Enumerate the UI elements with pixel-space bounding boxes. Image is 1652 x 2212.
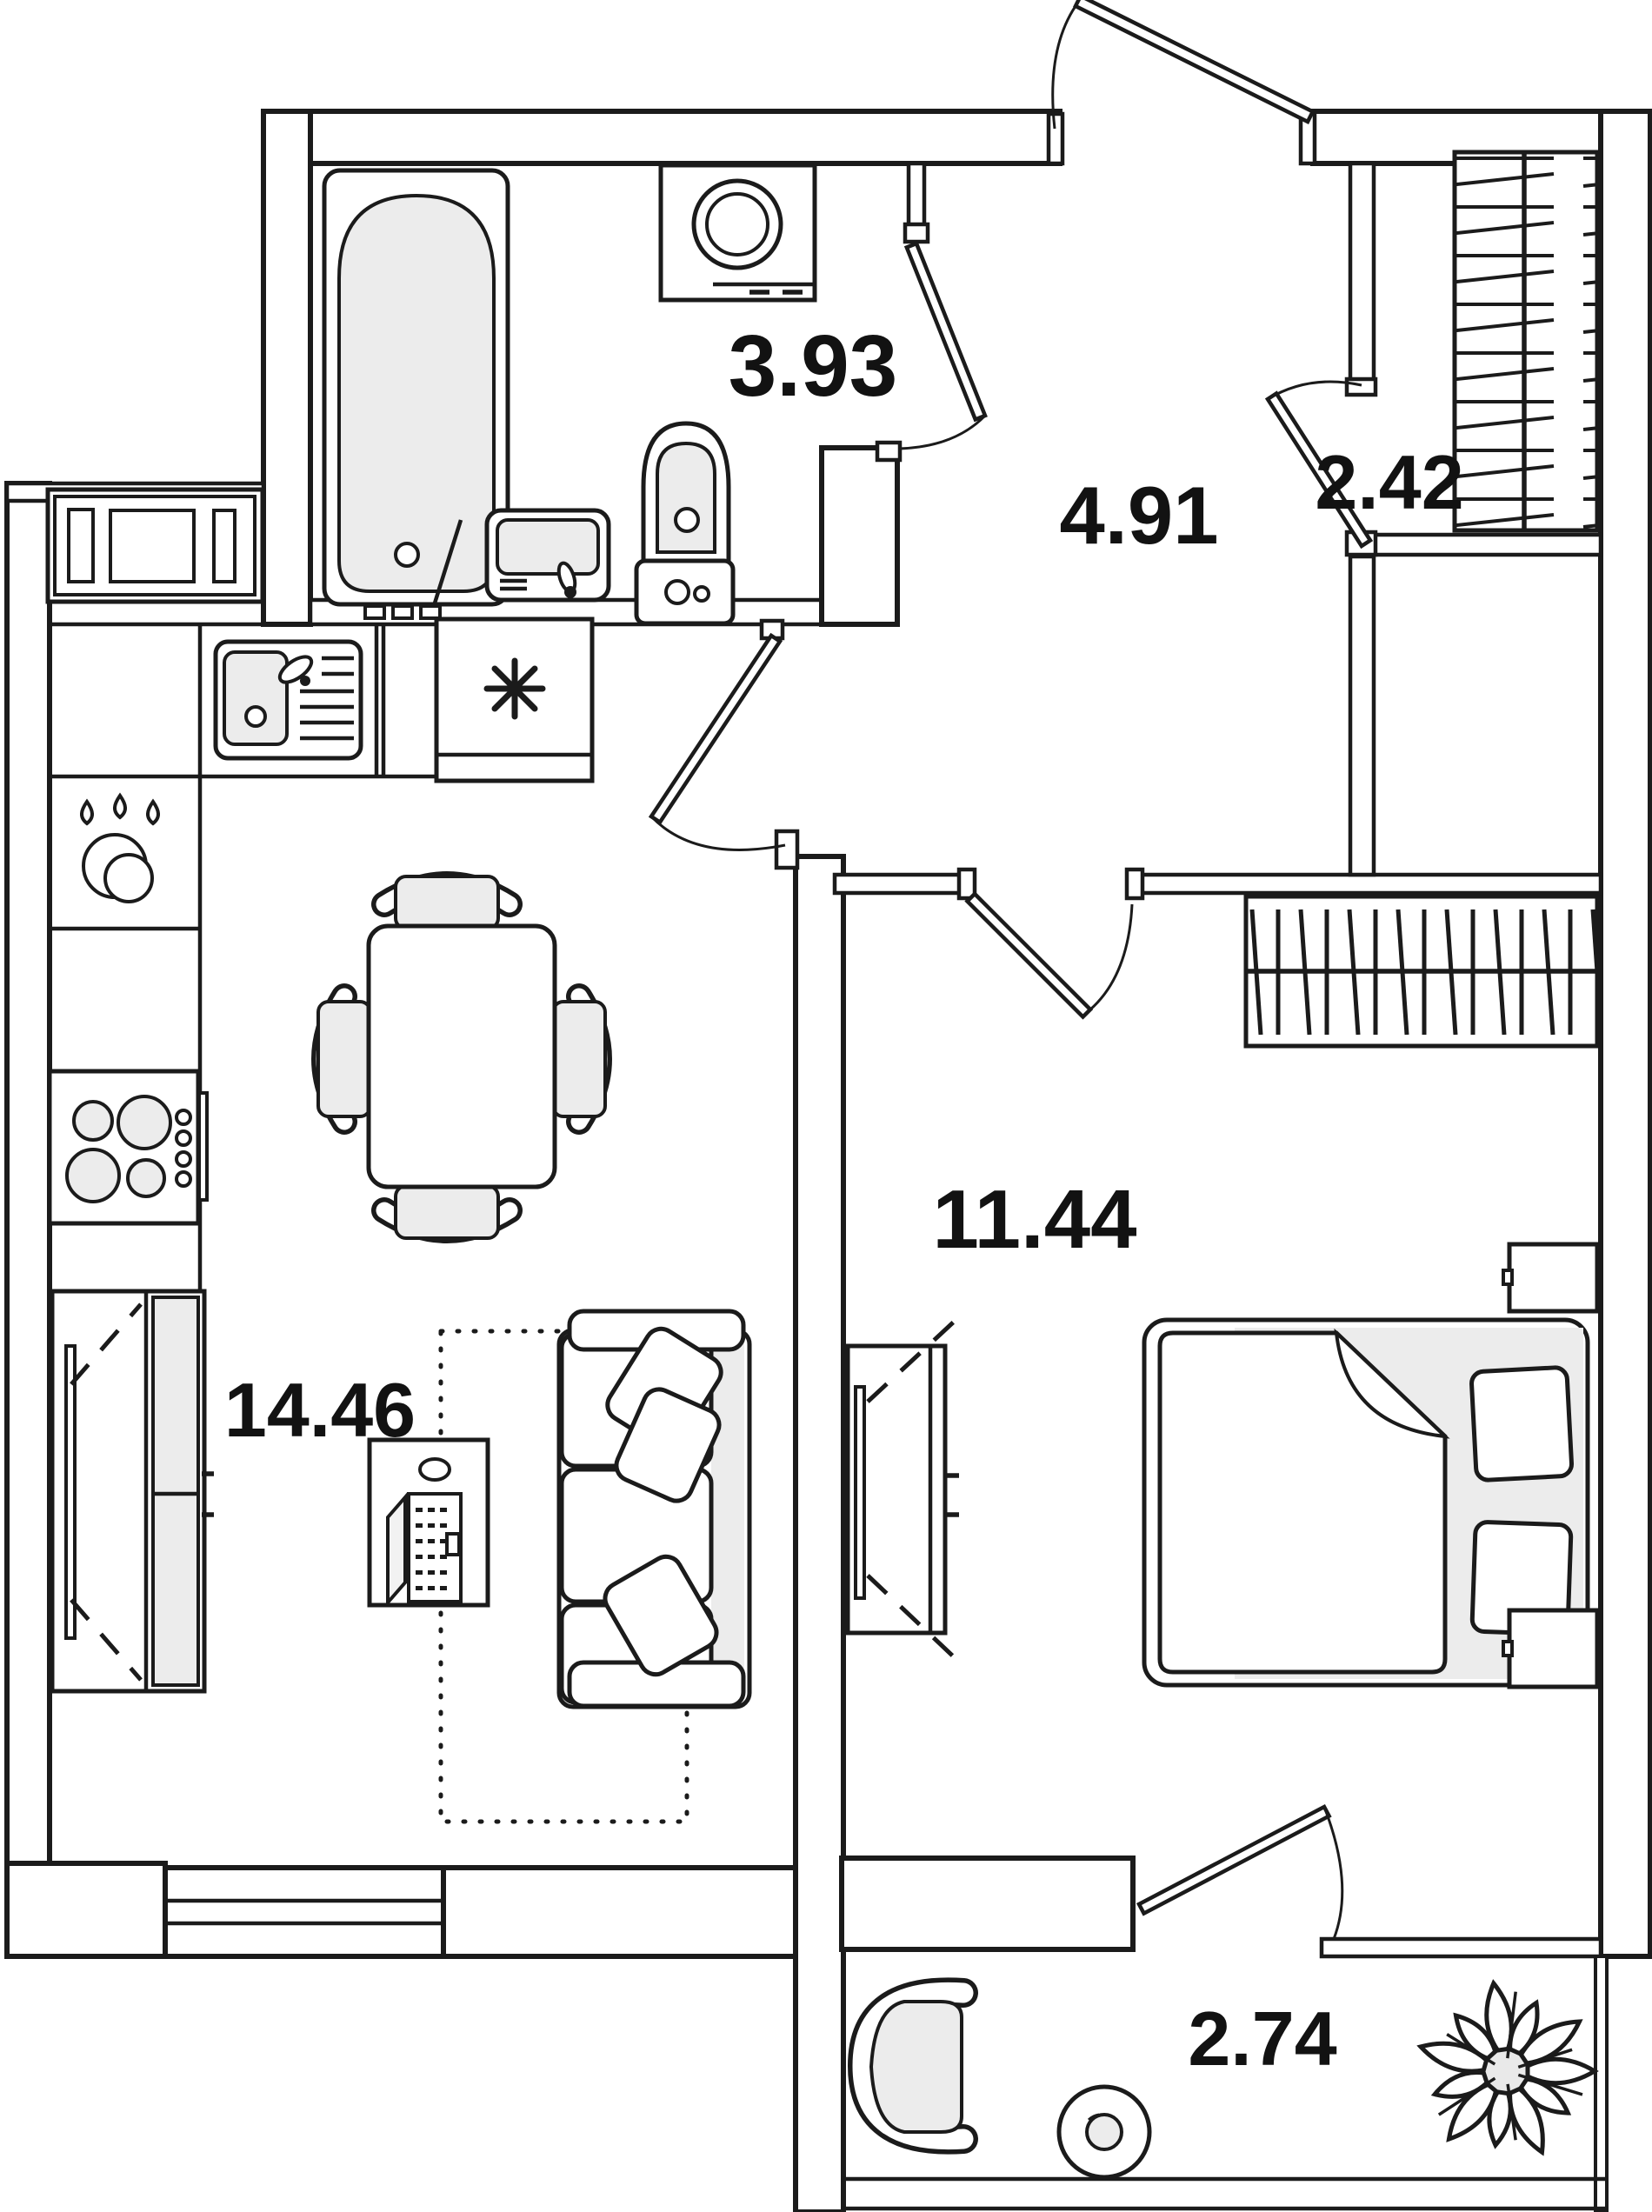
wall-top-left xyxy=(263,111,1060,163)
kitchen-door xyxy=(651,621,797,868)
laptop xyxy=(388,1494,461,1602)
nightstand-top xyxy=(1503,1244,1597,1311)
dining-set xyxy=(318,876,605,1238)
wall-balcony-top-right xyxy=(1322,1939,1601,1956)
desk xyxy=(370,1440,488,1605)
bedroom-door xyxy=(959,869,1142,1017)
bathroom-door-swing-arc xyxy=(899,416,985,449)
toilet xyxy=(636,423,733,623)
microwave xyxy=(48,490,263,602)
dishwasher xyxy=(82,796,158,902)
wall-living-right xyxy=(796,856,843,2212)
balcony-door xyxy=(1139,1807,1342,1939)
entrance-door-leaf xyxy=(1076,0,1313,122)
wall-balcony-right-glazing xyxy=(1595,1956,1607,2210)
wall-closet-bottom xyxy=(1374,535,1601,555)
wardrobe-living xyxy=(52,1291,214,1691)
chair-bottom xyxy=(384,1186,510,1238)
wall-duct-column xyxy=(822,448,897,624)
kitchen-door-jamb-bottom xyxy=(776,831,797,868)
chair-left xyxy=(318,996,370,1122)
room-label-bedroom: 11.44 xyxy=(933,1173,1137,1266)
wall-bedroom-top-left xyxy=(835,875,968,893)
bedroom-door-leaf xyxy=(968,894,1091,1017)
kitchen-door-leaf xyxy=(651,636,780,823)
bedroom-door-jamb-right xyxy=(1127,869,1142,898)
balcony-door-swing-arc xyxy=(1324,1807,1342,1939)
room-label-balcony: 2.74 xyxy=(1188,1995,1336,2082)
entrance-door xyxy=(1049,0,1315,163)
nightstand-bottom xyxy=(1503,1610,1597,1687)
dining-table xyxy=(369,926,555,1187)
stove xyxy=(50,1071,207,1223)
washing-machine xyxy=(661,165,815,300)
kitchen-door-swing-arc xyxy=(651,816,785,849)
bathroom-door-jamb-bottom xyxy=(877,443,900,460)
bathroom-door-jamb-top xyxy=(905,224,928,242)
bathroom-sink xyxy=(487,510,609,600)
window-living-room xyxy=(165,1868,443,1956)
room-label-bathroom: 3.93 xyxy=(729,317,898,415)
closet-door-jamb-top xyxy=(1347,379,1376,395)
room-label-hallway: 4.91 xyxy=(1060,470,1219,561)
chair-top xyxy=(384,876,510,929)
closet-wardrobe xyxy=(1455,152,1597,530)
mouse xyxy=(420,1459,450,1480)
floor-plan-page: 3.93 4.91 2.42 11.44 14.46 2.74 xyxy=(0,0,1652,2212)
chair-right xyxy=(553,996,605,1122)
entrance-jamb-left xyxy=(1049,114,1062,163)
fridge-asterisk-icon xyxy=(487,661,543,716)
sofa xyxy=(559,1311,749,1707)
wall-balcony-top-left xyxy=(842,1858,1133,1949)
wall-bottom-mid xyxy=(443,1868,842,1956)
armchair xyxy=(863,1992,963,2139)
bedroom-door-swing-arc xyxy=(1090,904,1132,1009)
wall-right-outer xyxy=(1601,111,1650,1956)
room-label-closet: 2.42 xyxy=(1315,439,1463,525)
wall-bathroom-right-stub xyxy=(909,163,924,228)
wall-bedroom-top-right xyxy=(1130,875,1601,893)
wall-bathroom-left xyxy=(263,111,310,624)
kitchen-sink xyxy=(216,642,361,758)
hall-wardrobe xyxy=(1246,896,1597,1046)
wall-bottom-left-block xyxy=(7,1863,165,1956)
plant xyxy=(1417,1982,1595,2157)
tv-cabinet xyxy=(848,1313,963,1666)
balcony-table xyxy=(1059,2087,1149,2177)
bed-pillow xyxy=(1471,1367,1572,1481)
floor-plan: 3.93 4.91 2.42 11.44 14.46 2.74 xyxy=(0,0,1652,2212)
bathtub xyxy=(324,170,508,618)
room-label-kitchen-living: 14.46 xyxy=(224,1367,416,1453)
balcony-door-leaf xyxy=(1139,1807,1329,1914)
fridge xyxy=(436,619,592,781)
bathroom-door-leaf xyxy=(907,243,985,420)
wall-closet-left-lower xyxy=(1350,556,1374,875)
wall-closet-left-upper xyxy=(1350,163,1374,383)
wall-left-outer xyxy=(7,483,50,1868)
